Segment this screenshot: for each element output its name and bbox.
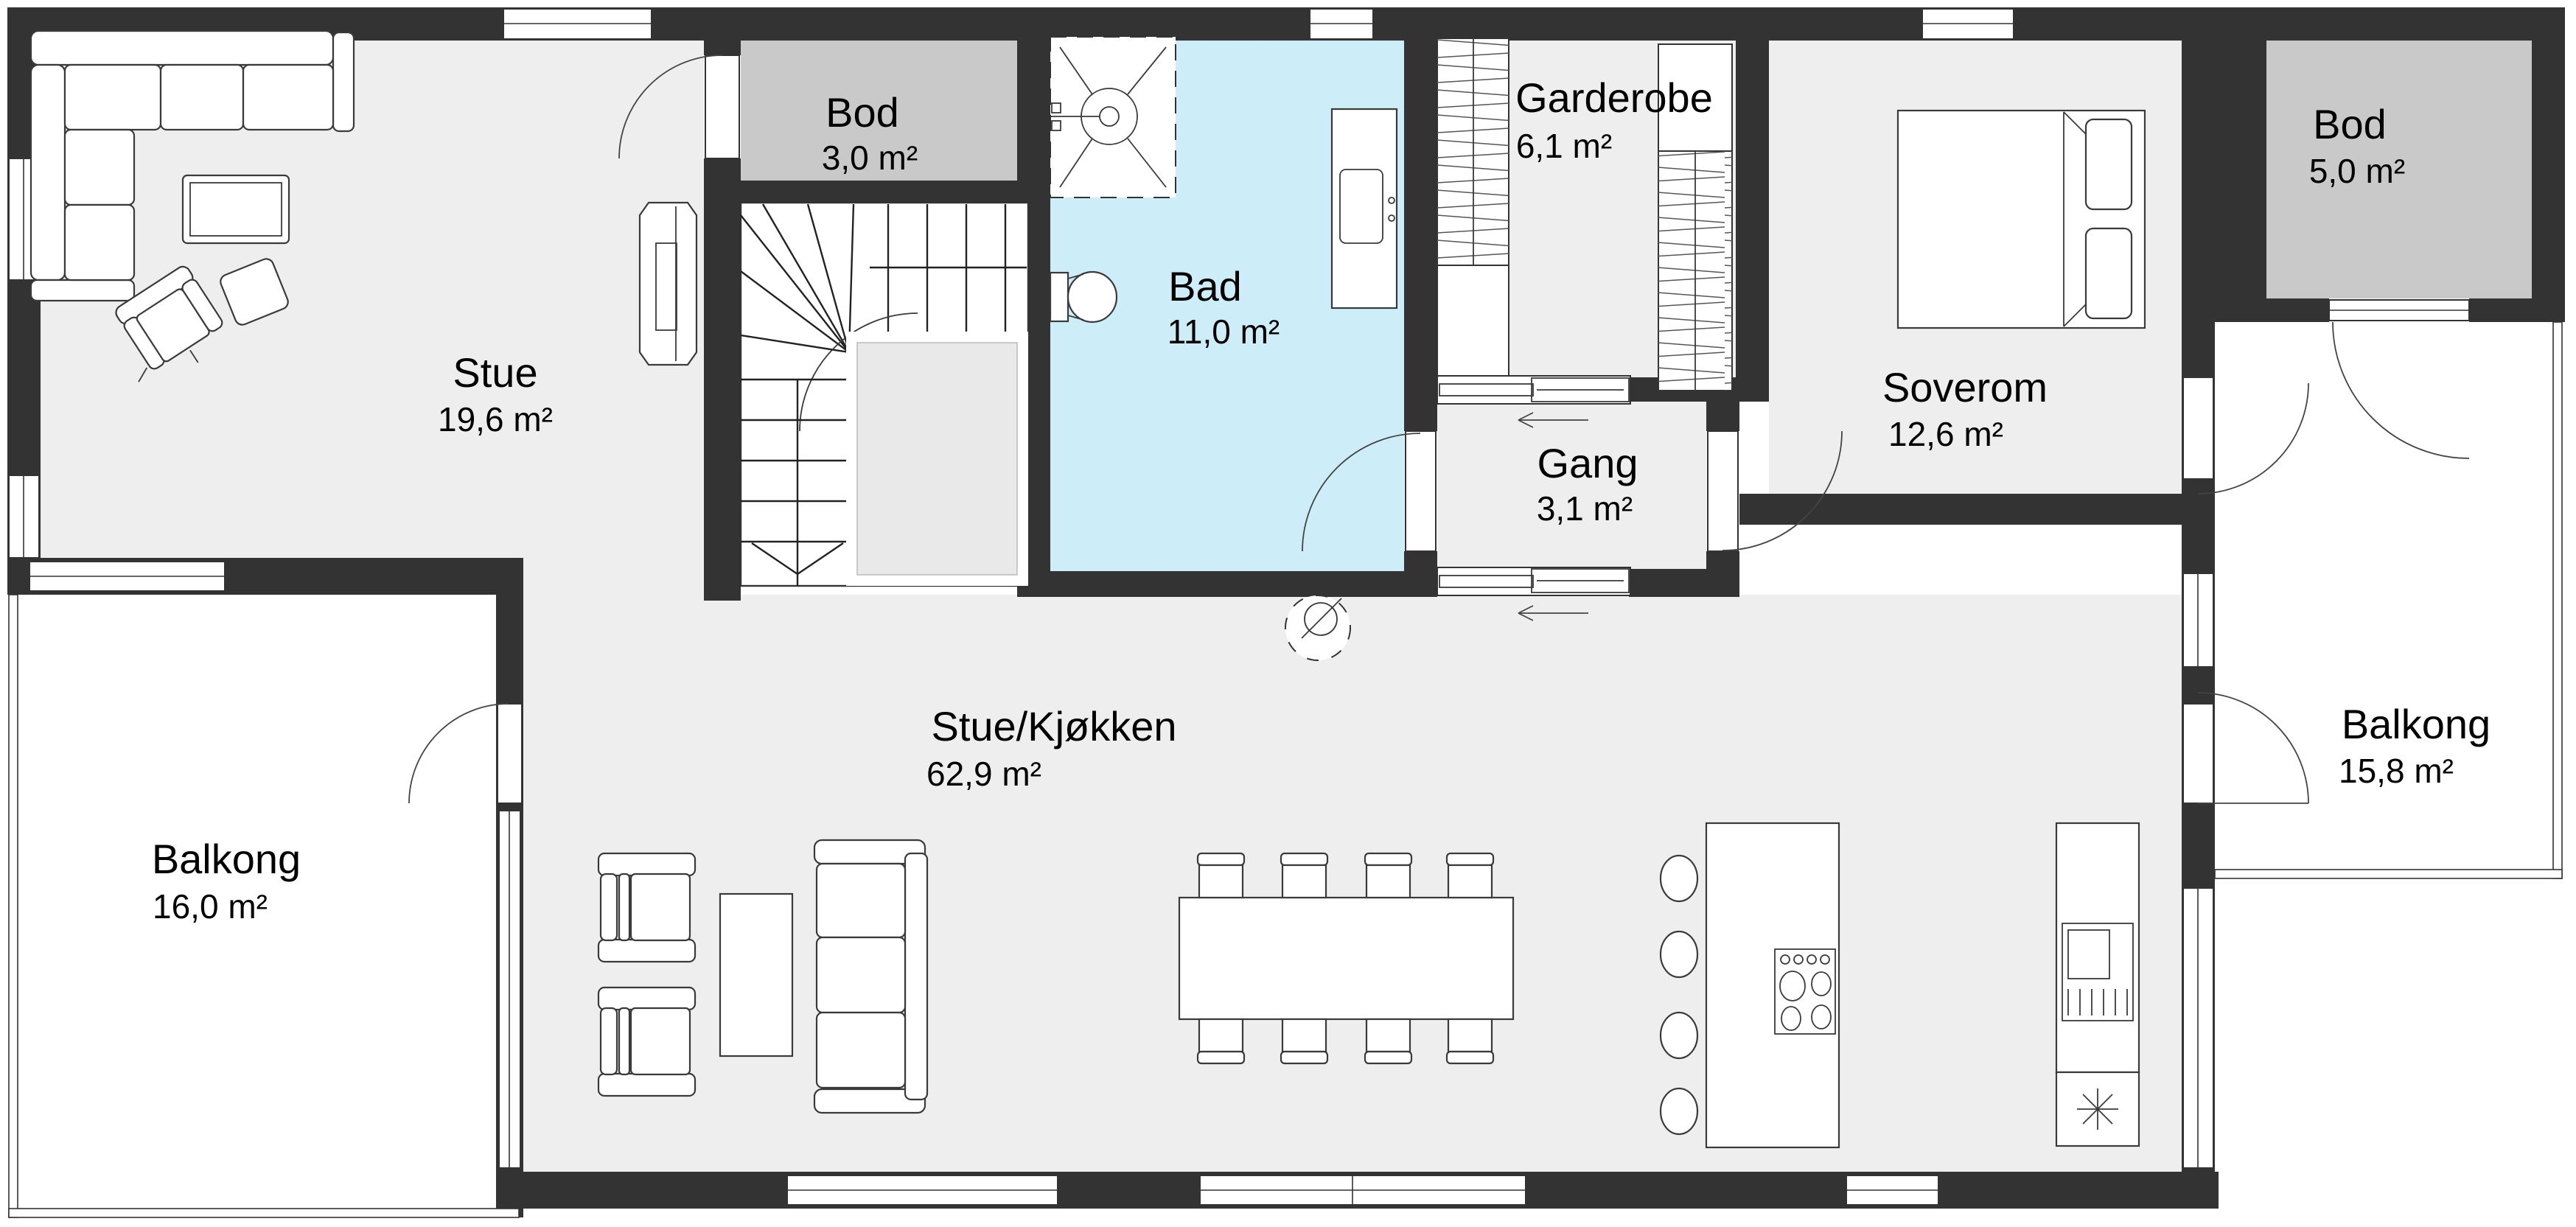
bedroom-furniture — [1898, 111, 2145, 328]
staircase — [741, 203, 1028, 586]
dining-chair — [1281, 1019, 1327, 1063]
shower — [1050, 37, 1176, 197]
room-area-balkong-right: 15,8 m² — [2339, 752, 2454, 790]
room-label-balkong-left: Balkong — [152, 836, 301, 882]
kitchen-island — [1706, 823, 1839, 1147]
lounge-chair — [598, 853, 695, 962]
room-area-bod-large: 5,0 m² — [2309, 152, 2405, 190]
window — [503, 9, 652, 39]
window — [1846, 1175, 1938, 1205]
room-area-stue: 19,6 m² — [438, 400, 553, 438]
bar-stool — [1661, 1088, 1697, 1134]
vanity-sink — [1332, 109, 1397, 308]
room-area-bad: 11,0 m² — [1167, 312, 1280, 351]
window — [1310, 9, 1373, 39]
pillow — [2086, 228, 2132, 318]
coffee-table — [183, 175, 289, 243]
lounge-chair — [598, 987, 695, 1096]
dining-chair — [1447, 1019, 1493, 1063]
drain-symbol-icon — [2077, 1088, 2118, 1130]
room-label-soverom: Soverom — [1882, 364, 2048, 410]
room-label-bod-small: Bod — [825, 89, 899, 136]
dining-table — [1179, 898, 1513, 1019]
railing — [9, 1209, 519, 1217]
pillow — [2086, 119, 2132, 209]
railing — [9, 595, 18, 1217]
dining-chair — [1365, 853, 1411, 898]
room-label-balkong-right: Balkong — [2342, 701, 2491, 747]
railing — [2553, 322, 2562, 878]
room-label-stue: Stue — [453, 349, 537, 396]
room-label-bad: Bad — [1168, 263, 1242, 310]
window — [787, 1175, 1058, 1205]
window — [1200, 1175, 1526, 1205]
window — [29, 562, 225, 591]
room-label-gang: Gang — [1537, 440, 1638, 486]
sofa — [814, 840, 927, 1113]
room-area-bod-small: 3,0 m² — [822, 139, 918, 177]
wardrobe — [1437, 38, 1509, 376]
tv-bench — [640, 203, 697, 365]
dining-chair — [1365, 1019, 1411, 1063]
kitchen-counter — [2056, 823, 2139, 1146]
stair-landing — [846, 332, 1028, 586]
window — [2183, 573, 2213, 667]
room-area-soverom: 12,6 m² — [1888, 415, 2003, 453]
bar-stool — [1661, 856, 1697, 901]
dining-chair — [1198, 853, 1244, 898]
room-label-bod-large: Bod — [2313, 101, 2387, 147]
room-label-garderobe: Garderobe — [1515, 74, 1713, 121]
window — [1922, 9, 2014, 39]
flue-symbol — [1285, 595, 1350, 660]
window — [499, 811, 520, 1168]
dining-chair — [1447, 853, 1493, 898]
window — [9, 475, 39, 558]
dining-chair — [1198, 1019, 1244, 1063]
room-label-stue-kjokken: Stue/Kjøkken — [931, 703, 1176, 749]
room-area-gang: 3,1 m² — [1537, 489, 1633, 528]
floor-plan-page: Stue 19,6 m² Bod 3,0 m² Bad 11,0 m² Gard… — [0, 0, 2576, 1227]
room-stue-kjokken-floor — [523, 595, 2185, 1172]
dining-chair — [1281, 853, 1327, 898]
railing — [2215, 870, 2562, 878]
room-area-stue-kjokken: 62,9 m² — [926, 755, 1041, 793]
bar-stool — [1661, 931, 1697, 977]
toilet — [1050, 272, 1117, 322]
window — [2183, 888, 2213, 1168]
coffee-table — [720, 894, 792, 1056]
floor-plan-canvas: Stue 19,6 m² Bod 3,0 m² Bad 11,0 m² Gard… — [0, 0, 2576, 1227]
room-area-balkong-left: 16,0 m² — [153, 887, 268, 926]
room-area-garderobe: 6,1 m² — [1516, 127, 1612, 165]
bar-stool — [1661, 1013, 1697, 1058]
double-bed — [1898, 111, 2145, 328]
